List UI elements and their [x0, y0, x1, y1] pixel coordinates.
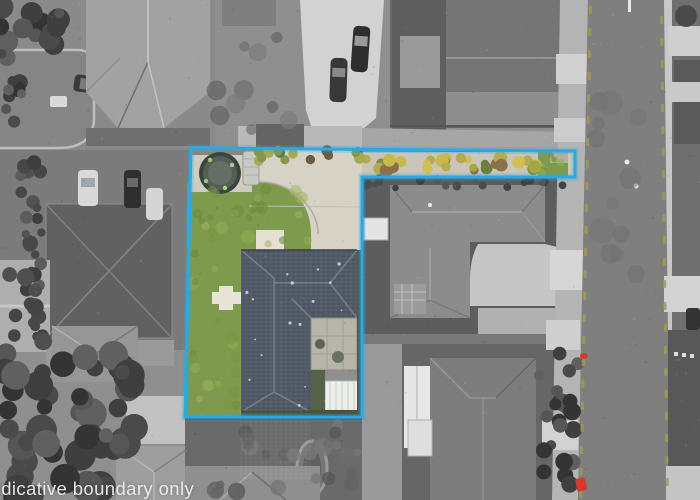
road-centre-marker-1: [625, 160, 630, 165]
neighbour-house-top-right: [390, 0, 560, 130]
road-white-dash: [628, 0, 631, 12]
greenhouse: [325, 381, 358, 413]
patio: [311, 318, 357, 370]
garden-beside-patio: [311, 370, 325, 412]
driveway-apron-3: [550, 250, 586, 290]
driveway-apron-4: [546, 320, 580, 350]
driveway-apron-2: [554, 118, 588, 142]
street-right: [578, 0, 670, 500]
east-fence-band: [362, 334, 578, 344]
parked-car-white-top-left: [50, 96, 67, 107]
driveway-apron-1: [556, 54, 590, 84]
neighbour-roof-fragment-top: [222, 0, 276, 26]
aerial-photo: Indicative boundary only: [0, 0, 700, 500]
white-shed-south: [408, 420, 432, 456]
neighbour-roof-below-subject: [185, 466, 320, 500]
neighbour-house-left: [46, 204, 172, 338]
aerial-scene: [0, 0, 700, 500]
se-neighbour-path: [362, 344, 402, 500]
white-shed-east: [364, 218, 388, 240]
watermark-text: Indicative boundary only: [0, 478, 194, 499]
concrete-pad-2b: [219, 286, 233, 310]
red-marker-1: [580, 353, 588, 359]
trampoline: [199, 152, 241, 194]
